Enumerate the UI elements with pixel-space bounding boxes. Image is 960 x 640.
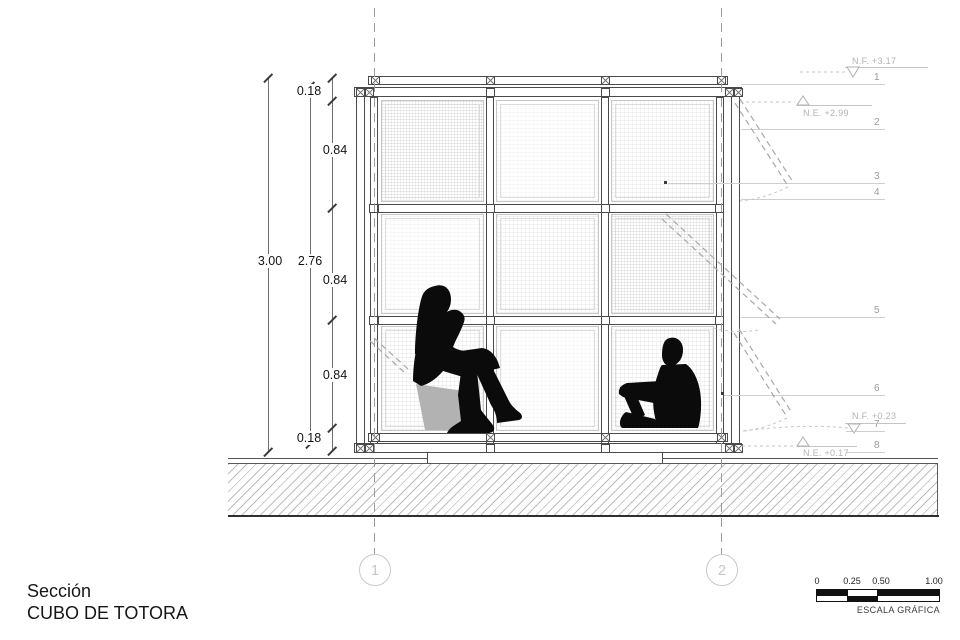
drawing-overlay	[0, 0, 960, 640]
level-triangle-icon	[847, 67, 859, 77]
leader-dot	[664, 181, 667, 184]
drawing-name: CUBO DE TOTORA	[27, 602, 188, 624]
leader-dot	[721, 392, 724, 395]
scale-caption: ESCALA GRÁFICA	[840, 605, 940, 615]
scale-tick-0: 0	[814, 576, 819, 586]
scale-tick-100: 1.00	[925, 576, 943, 586]
hatch-swing-arcs	[714, 72, 848, 446]
level-triangle-icon	[797, 96, 809, 105]
section-drawing: 1 2 3.00 2.76 0.18 0.84 0.84 0.84 0.18 1…	[0, 0, 960, 640]
drawing-type: Sección	[27, 580, 188, 602]
level-triangle-icon	[797, 437, 809, 446]
scale-tick-025: 0.25	[843, 576, 861, 586]
scale-segment	[878, 596, 939, 602]
figure-seated-floor	[619, 338, 701, 428]
scale-segment	[817, 596, 848, 602]
scale-segment	[848, 596, 878, 602]
level-triangle-icon	[848, 424, 860, 433]
scale-bar	[816, 589, 940, 602]
scale-tick-050: 0.50	[872, 576, 890, 586]
title-block: Sección CUBO DE TOTORA	[27, 580, 188, 624]
